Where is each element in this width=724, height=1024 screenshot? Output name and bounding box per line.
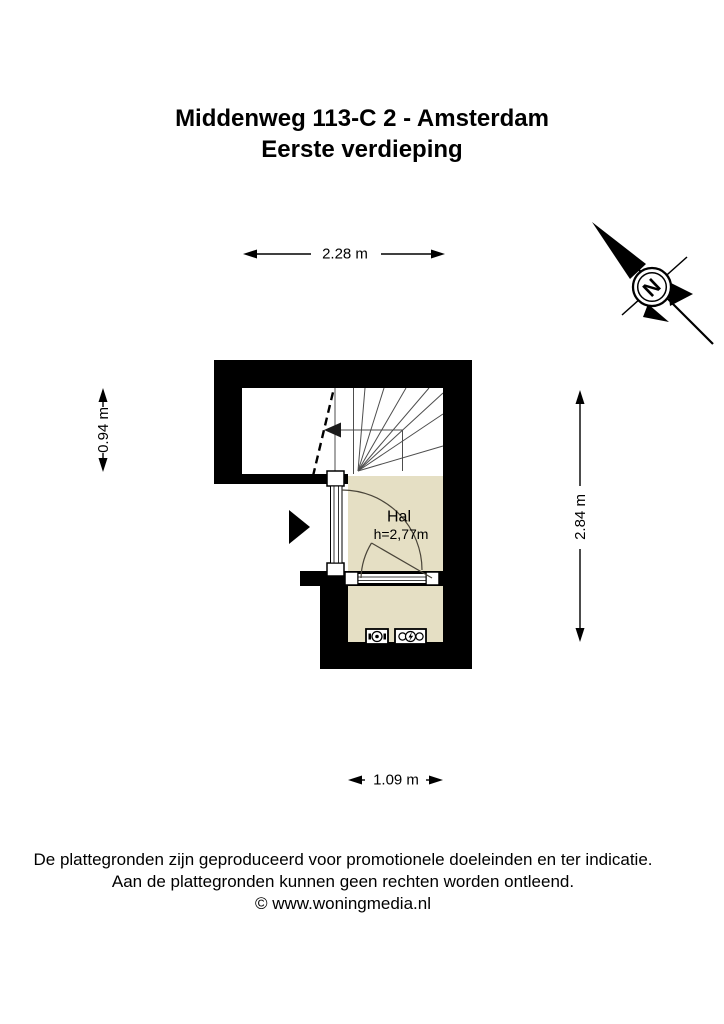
arrow-left-icon — [243, 250, 257, 259]
door-frame — [327, 471, 344, 486]
door-leaf — [358, 574, 426, 584]
wall-bottom — [320, 642, 472, 669]
electricity-meter-icon — [395, 629, 426, 644]
disclaimer-line-3: © www.woningmedia.nl — [0, 893, 686, 915]
dimension-right: 2.84 m — [572, 390, 589, 642]
room-height-label: h=2,77m — [374, 526, 429, 542]
wall-right — [443, 360, 472, 669]
arrow-down-icon — [576, 628, 585, 642]
room-label: Hal — [387, 509, 411, 526]
dimension-top: 2.28 m — [243, 246, 445, 263]
arrow-right-icon — [429, 776, 443, 785]
floorplan-page: Middenweg 113-C 2 - Amsterdam Eerste ver… — [0, 0, 724, 1024]
wall-meter-room-left — [320, 586, 348, 642]
door-frame — [426, 572, 439, 585]
door-frame — [327, 563, 344, 576]
arrow-left-icon — [348, 776, 362, 785]
wall-left — [214, 360, 242, 484]
stair-winder — [358, 414, 443, 471]
stair-winder — [358, 393, 443, 471]
meter-symbols — [366, 629, 426, 644]
disclaimer-line-1: De plattegronden zijn geproduceerd voor … — [0, 849, 686, 871]
arrow-right-icon — [431, 250, 445, 259]
wall-stair-bottom — [214, 474, 328, 484]
dimension-left: 0.94 m — [95, 388, 112, 472]
dimension-bottom-label: 1.09 m — [373, 772, 419, 789]
wall-top — [214, 360, 472, 388]
disclaimer: De plattegronden zijn geproduceerd voor … — [0, 849, 686, 915]
stair-direction-arrow-icon — [324, 423, 341, 438]
dimension-top-label: 2.28 m — [322, 246, 368, 263]
arrow-down-icon — [99, 458, 108, 472]
dimension-left-label: 0.94 m — [95, 407, 112, 453]
disclaimer-line-2: Aan de plattegronden kunnen geen rechten… — [0, 871, 686, 893]
floor-areas — [348, 476, 445, 642]
staircase — [313, 388, 443, 476]
compass-north-icon: N — [592, 222, 713, 344]
arrow-up-icon — [99, 388, 108, 402]
entrance-arrow-icon — [289, 510, 310, 544]
water-meter-icon — [366, 629, 388, 644]
dimension-right-label: 2.84 m — [572, 494, 589, 540]
dimension-bottom: 1.09 m — [348, 772, 443, 789]
door-frame — [345, 572, 358, 585]
door-west — [327, 471, 344, 576]
door-leaf — [331, 486, 343, 563]
arrow-up-icon — [576, 390, 585, 404]
compass-needle — [592, 222, 646, 279]
